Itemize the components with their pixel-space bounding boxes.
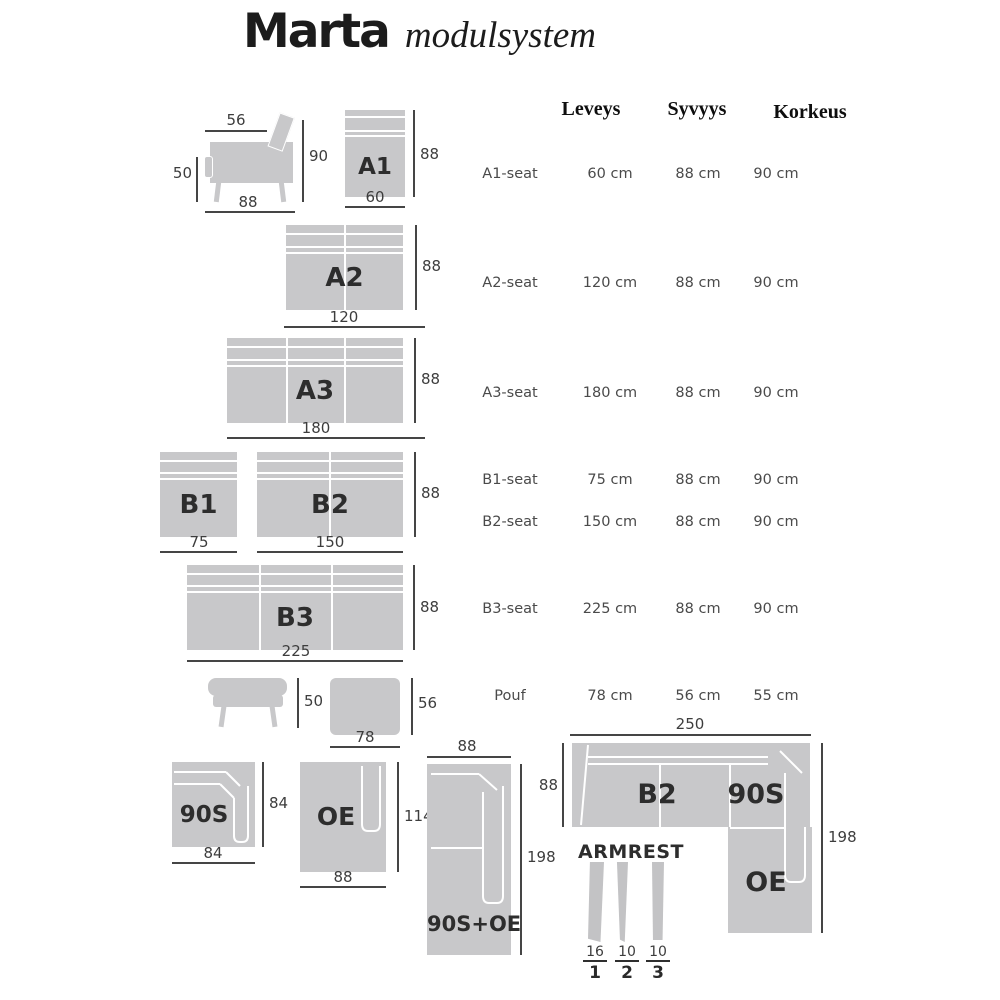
dim-a3-width: 180 xyxy=(296,419,336,437)
module-label: 90S xyxy=(172,802,236,828)
corner-sofa-oe-section: OE xyxy=(728,827,812,933)
column-header-leveys: Leveys xyxy=(548,98,634,121)
corner-sofa-top-section: B2 90S xyxy=(572,743,810,827)
dim-line xyxy=(300,886,386,888)
dim-line xyxy=(570,734,811,736)
dim-combo-width: 88 xyxy=(447,737,487,755)
corner-sofa-b2-label: B2 xyxy=(617,779,697,810)
dim-b1-width: 75 xyxy=(179,533,219,551)
armrest-size-3: 10 xyxy=(646,944,670,962)
module-pouf xyxy=(330,678,400,735)
dim-line xyxy=(520,764,522,955)
armrest-size-2: 10 xyxy=(615,944,639,962)
dim-a2-depth: 88 xyxy=(422,257,452,275)
armrest-number-3: 3 xyxy=(646,963,670,983)
dim-b3-depth: 88 xyxy=(420,598,450,616)
corner-sofa-oe-label: OE xyxy=(728,867,804,898)
dim-line xyxy=(562,743,564,827)
row-label: A2-seat xyxy=(460,275,560,291)
brand-name: Marta xyxy=(243,4,389,59)
module-label: B3 xyxy=(187,603,403,633)
row-width: 225 cm xyxy=(575,601,645,617)
dim-b3-width: 225 xyxy=(276,642,316,660)
armrest-size-1: 16 xyxy=(583,944,607,962)
row-height: 90 cm xyxy=(741,601,811,617)
dim-90s-depth: 84 xyxy=(269,794,299,812)
armrest-section-title: ARMREST xyxy=(578,841,682,863)
module-oe: OE xyxy=(300,762,386,872)
dim-b2-width: 150 xyxy=(310,533,350,551)
row-label: B2-seat xyxy=(460,514,560,530)
armchair-leg xyxy=(279,182,286,202)
armrest-shape-2 xyxy=(615,862,628,942)
armrest-number-1: 1 xyxy=(583,963,607,983)
row-width: 150 cm xyxy=(575,514,645,530)
dim-armchair-seat-height: 50 xyxy=(168,164,192,182)
row-depth: 88 cm xyxy=(663,601,733,617)
dim-b2-depth: 88 xyxy=(421,484,451,502)
dim-line xyxy=(415,225,417,310)
dim-90s-width: 84 xyxy=(193,844,233,862)
dim-line xyxy=(205,211,295,213)
row-width: 120 cm xyxy=(575,275,645,291)
row-label: Pouf xyxy=(460,688,560,704)
dim-line xyxy=(330,746,400,748)
row-width: 78 cm xyxy=(575,688,645,704)
dim-line xyxy=(227,437,425,439)
dim-armchair-height: 90 xyxy=(309,147,339,165)
dim-a1-width: 60 xyxy=(355,188,395,206)
dim-corner-sofa-width: 250 xyxy=(670,715,710,733)
corner-sofa-90s-label: 90S xyxy=(716,779,796,810)
dim-line xyxy=(427,756,511,758)
armchair-leg xyxy=(214,182,221,202)
dim-corner-sofa-depth: 88 xyxy=(534,776,558,794)
dim-line xyxy=(262,762,264,847)
armchair-armrest-profile xyxy=(204,156,213,178)
armrest-number-2: 2 xyxy=(615,963,639,983)
module-a3: A3 xyxy=(227,338,403,423)
row-height: 55 cm xyxy=(741,688,811,704)
module-label: B2 xyxy=(257,490,403,520)
module-label: OE xyxy=(300,802,372,831)
module-label: A1 xyxy=(345,154,405,180)
dim-line xyxy=(413,565,415,650)
dim-line xyxy=(160,551,237,553)
dim-a3-depth: 88 xyxy=(421,370,451,388)
dim-oe-width: 88 xyxy=(323,868,363,886)
row-label: A3-seat xyxy=(460,385,560,401)
dim-pouf-width: 78 xyxy=(345,728,385,746)
row-depth: 88 cm xyxy=(663,166,733,182)
pouf-leg xyxy=(219,706,227,727)
row-height: 90 cm xyxy=(741,385,811,401)
armrest-shape-1 xyxy=(588,862,604,942)
dim-line xyxy=(414,338,416,423)
dim-line xyxy=(345,206,405,208)
dim-line xyxy=(397,762,399,872)
row-width: 60 cm xyxy=(575,166,645,182)
module-b3: B3 xyxy=(187,565,403,650)
dim-line xyxy=(284,326,425,328)
row-depth: 88 cm xyxy=(663,385,733,401)
subtitle: modulsystem xyxy=(405,14,596,57)
row-label: B1-seat xyxy=(460,472,560,488)
dim-line xyxy=(205,130,267,132)
dim-armchair-depth: 88 xyxy=(228,193,268,211)
row-height: 90 cm xyxy=(741,472,811,488)
row-width: 75 cm xyxy=(575,472,645,488)
dim-combo-height: 198 xyxy=(527,848,567,866)
dim-line xyxy=(414,452,416,537)
dim-line xyxy=(196,157,198,202)
module-90s: 90S xyxy=(172,762,255,847)
row-depth: 56 cm xyxy=(663,688,733,704)
row-height: 90 cm xyxy=(741,166,811,182)
dim-line xyxy=(302,120,304,202)
dim-line xyxy=(411,678,413,735)
row-height: 90 cm xyxy=(741,514,811,530)
dim-pouf-depth: 56 xyxy=(418,694,448,712)
dim-line xyxy=(821,743,823,933)
module-label: 90S+OE xyxy=(427,912,511,936)
pouf-leg xyxy=(270,706,278,727)
dim-corner-sofa-height: 198 xyxy=(828,828,868,846)
dim-line xyxy=(297,678,299,728)
row-label: A1-seat xyxy=(460,166,560,182)
row-depth: 88 cm xyxy=(663,472,733,488)
row-height: 90 cm xyxy=(741,275,811,291)
row-width: 180 cm xyxy=(575,385,645,401)
column-header-korkeus: Korkeus xyxy=(762,101,858,124)
row-depth: 88 cm xyxy=(663,514,733,530)
module-label: A3 xyxy=(227,376,403,406)
module-b2: B2 xyxy=(257,452,403,537)
module-a1: A1 xyxy=(345,110,405,197)
module-b1: B1 xyxy=(160,452,237,537)
marta-modulsystem-spec-sheet: Marta modulsystem Leveys Syvyys Korkeus … xyxy=(0,0,1000,1000)
column-header-syvyys: Syvyys xyxy=(654,98,740,121)
dim-line xyxy=(187,660,403,662)
page-title: Marta modulsystem xyxy=(243,4,596,59)
dim-armchair-seat-width: 56 xyxy=(216,111,256,129)
dim-line xyxy=(257,551,403,553)
dim-a2-width: 120 xyxy=(324,308,364,326)
module-label: A2 xyxy=(286,263,403,293)
module-a2: A2 xyxy=(286,225,403,310)
module-90s-oe: 90S+OE xyxy=(427,764,511,955)
dim-line xyxy=(413,110,415,197)
module-label: B1 xyxy=(160,490,237,520)
row-depth: 88 cm xyxy=(663,275,733,291)
row-label: B3-seat xyxy=(460,601,560,617)
pouf-cushion xyxy=(208,678,287,696)
armrest-shape-3 xyxy=(652,862,664,940)
dim-line xyxy=(172,862,255,864)
dim-a1-depth: 88 xyxy=(420,145,450,163)
